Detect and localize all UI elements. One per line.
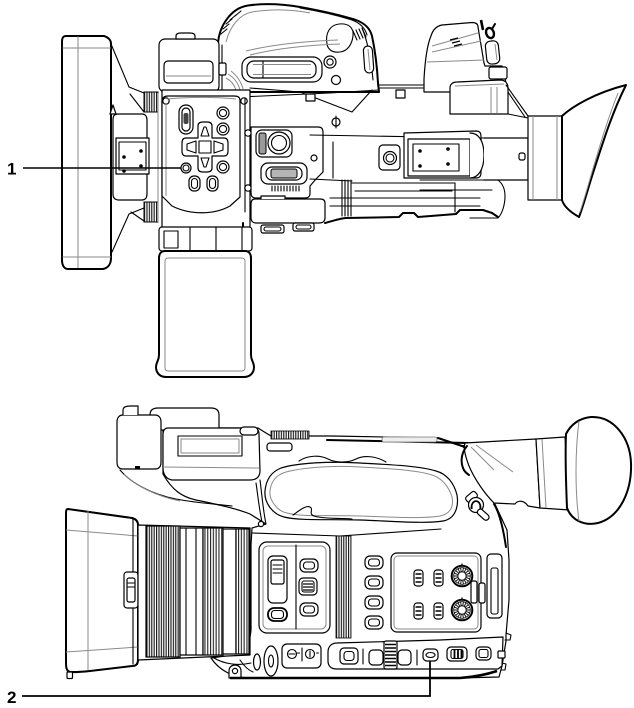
svg-text:1: 1 [7,160,16,179]
svg-text:2: 2 [7,688,16,707]
